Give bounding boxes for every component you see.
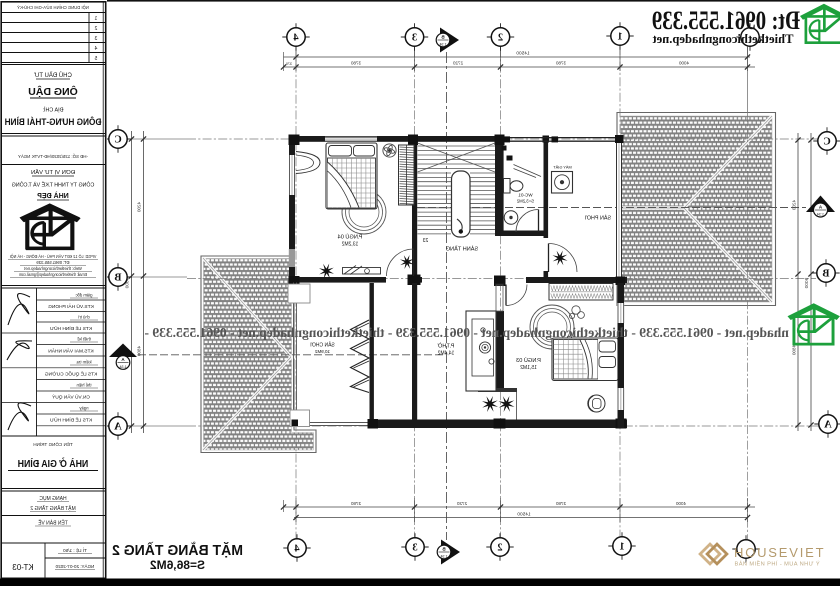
svg-text:TÊN CÔNG TRÌNH: TÊN CÔNG TRÌNH (33, 440, 72, 447)
svg-text:3: 3 (412, 33, 417, 44)
svg-text:TỈ LỆ : 1/50: TỈ LỆ : 1/50 (63, 546, 87, 553)
svg-text:23: 23 (423, 238, 429, 244)
svg-text:-HĐ SỐ: 125/2020/HĐ-TVTK NGÀY: -HĐ SỐ: 125/2020/HĐ-TVTK NGÀY (18, 154, 88, 159)
svg-text:NỘI DUNG CHỈNH SỬA-GHI CHÚ-KÝ: NỘI DUNG CHỈNH SỬA-GHI CHÚ-KÝ (17, 5, 89, 10)
svg-text:ĐT: 0961.555.339: ĐT: 0961.555.339 (36, 260, 70, 265)
svg-text:SÂN PHƠI: SÂN PHƠI (585, 215, 611, 222)
svg-text:1: 1 (617, 32, 622, 43)
svg-text:Email: thietkethicongnhadep@gm: Email: thietkethicongnhadep@gmail.com (18, 272, 87, 277)
svg-text:SẢNH TẦNG: SẢNH TẦNG (446, 246, 479, 253)
svg-text:3780: 3780 (350, 501, 361, 506)
svg-text:HẠNG MỤC: HẠNG MỤC (39, 496, 67, 502)
svg-text:KTS.MAI VĂN NHÂN: KTS.MAI VĂN NHÂN (48, 348, 94, 355)
svg-text:TÊN BẢN VẼ: TÊN BẢN VẼ (37, 519, 67, 527)
svg-text:P.THỜ: P.THỜ (437, 343, 454, 350)
svg-text:NHÀ Ở GIA ĐÌNH: NHÀ Ở GIA ĐÌNH (17, 457, 88, 469)
svg-text:B: B (114, 273, 121, 284)
svg-text:370: 370 (286, 62, 292, 66)
svg-text:14500: 14500 (517, 512, 531, 518)
svg-text:ĐỊA CHỈ:: ĐỊA CHỈ: (43, 107, 64, 114)
svg-text:4: 4 (294, 544, 300, 555)
svg-text:4200: 4200 (792, 200, 797, 211)
svg-text:1:34: 1:34 (120, 365, 127, 369)
svg-text:2: 2 (94, 26, 97, 32)
svg-text:13,2M2: 13,2M2 (341, 242, 358, 248)
svg-text:3780: 3780 (555, 61, 566, 66)
svg-text:1:34: 1:34 (440, 43, 447, 47)
svg-text:4000: 4000 (675, 501, 686, 506)
svg-text:14,4M2: 14,4M2 (437, 351, 454, 357)
svg-text:P.NGỦ 04: P.NGỦ 04 (338, 234, 363, 241)
svg-text:giám đốc: giám đốc (76, 293, 93, 298)
svg-text:CHỦ ĐẦU TƯ: CHỦ ĐẦU TƯ (34, 72, 72, 79)
svg-text:2: 2 (497, 543, 502, 554)
svg-text:2: 2 (498, 33, 503, 44)
svg-text:ĐƠN VỊ TƯ VẤN: ĐƠN VỊ TƯ VẤN (31, 169, 75, 176)
svg-text:HOUSEVIET: HOUSEVIET (734, 545, 825, 560)
svg-text:KT-03: KT-03 (12, 563, 34, 572)
svg-text:ngày: ngày (79, 406, 89, 411)
svg-text:1:34: 1:34 (441, 555, 448, 559)
svg-text:MẶT BẰNG TẦNG 2: MẶT BẰNG TẦNG 2 (112, 541, 243, 560)
svg-text:nhadep.net - 0961.555.339 - th: nhadep.net - 0961.555.339 - thietkethico… (141, 325, 789, 340)
svg-text:5: 5 (94, 56, 97, 62)
svg-text:MẶT BẰNG TẦNG 2: MẶT BẰNG TẦNG 2 (30, 504, 76, 512)
svg-text:CN.VŨ VĂN QUÝ: CN.VŨ VĂN QUÝ (51, 394, 90, 401)
svg-text:CÔNG TY TNHH T.KẾ VÀ T.CÔNG: CÔNG TY TNHH T.KẾ VÀ T.CÔNG (12, 181, 95, 188)
svg-text:SÂN CHƠI: SÂN CHƠI (310, 342, 335, 349)
svg-text:4800: 4800 (792, 345, 797, 356)
svg-text:S=86,6M2: S=86,6M2 (150, 558, 205, 572)
svg-text:P.NGỦ 03: P.NGỦ 03 (516, 357, 541, 364)
svg-text:9000: 9000 (804, 278, 810, 289)
svg-text:2720: 2720 (452, 61, 463, 66)
svg-text:4200: 4200 (137, 202, 142, 213)
svg-text:4: 4 (94, 46, 97, 52)
svg-text:VPGD: LÔ 12 KĐT VĂN PHÚ - HÀ Đ: VPGD: LÔ 12 KĐT VĂN PHÚ - HÀ ĐÔNG - HÀ N… (10, 254, 97, 259)
svg-text:thiết kế: thiết kế (77, 337, 91, 342)
svg-text:3: 3 (412, 543, 417, 554)
svg-text:1:34: 1:34 (817, 213, 824, 217)
svg-text:NHÀ ĐẸP: NHÀ ĐẸP (37, 191, 69, 200)
svg-text:4000: 4000 (678, 61, 689, 66)
svg-text:MÁY GIẶT: MÁY GIẶT (553, 165, 572, 170)
svg-text:Thietkethicongnhadep.net: Thietkethicongnhadep.net (652, 32, 794, 46)
svg-text:10,9M2: 10,9M2 (315, 349, 331, 354)
svg-text:chủ trì: chủ trì (78, 315, 90, 320)
svg-text:A: A (824, 420, 832, 431)
svg-text:KTS.VŨ HẢI PHONG: KTS.VŨ HẢI PHONG (48, 303, 94, 310)
svg-text:kiểm tra: kiểm tra (76, 360, 92, 365)
svg-text:ÔNG DẬU: ÔNG DẬU (28, 85, 78, 98)
svg-text:C: C (114, 135, 122, 146)
svg-text:WC-01: WC-01 (518, 193, 533, 198)
svg-text:ĐÔNG HƯNG-THÁI BÌNH: ĐÔNG HƯNG-THÁI BÌNH (5, 116, 102, 127)
svg-text:A: A (114, 422, 122, 433)
svg-text:14500: 14500 (516, 51, 530, 57)
svg-text:Web: thietkethicongnhadep.net: Web: thietkethicongnhadep.net (23, 266, 81, 271)
svg-text:thể hiện: thể hiện (76, 383, 92, 388)
svg-text:1: 1 (94, 16, 97, 22)
svg-text:1: 1 (619, 542, 624, 553)
svg-text:2720: 2720 (456, 501, 467, 506)
svg-text:15,1M2: 15,1M2 (520, 365, 537, 371)
svg-text:S=3,2M2: S=3,2M2 (516, 199, 534, 204)
svg-text:4800: 4800 (137, 346, 142, 357)
svg-text:3780: 3780 (555, 501, 566, 506)
svg-text:BẢN MIỀN PHÍ - MUA NHƯ Ý: BẢN MIỀN PHÍ - MUA NHƯ Ý (735, 561, 821, 568)
svg-text:3: 3 (94, 36, 97, 42)
svg-text:B: B (822, 269, 829, 280)
svg-text:NGÀY: 20-07-2020: NGÀY: 20-07-2020 (55, 563, 94, 569)
svg-text:4: 4 (293, 33, 299, 44)
svg-text:3780: 3780 (350, 61, 361, 66)
svg-text:C: C (823, 137, 831, 148)
